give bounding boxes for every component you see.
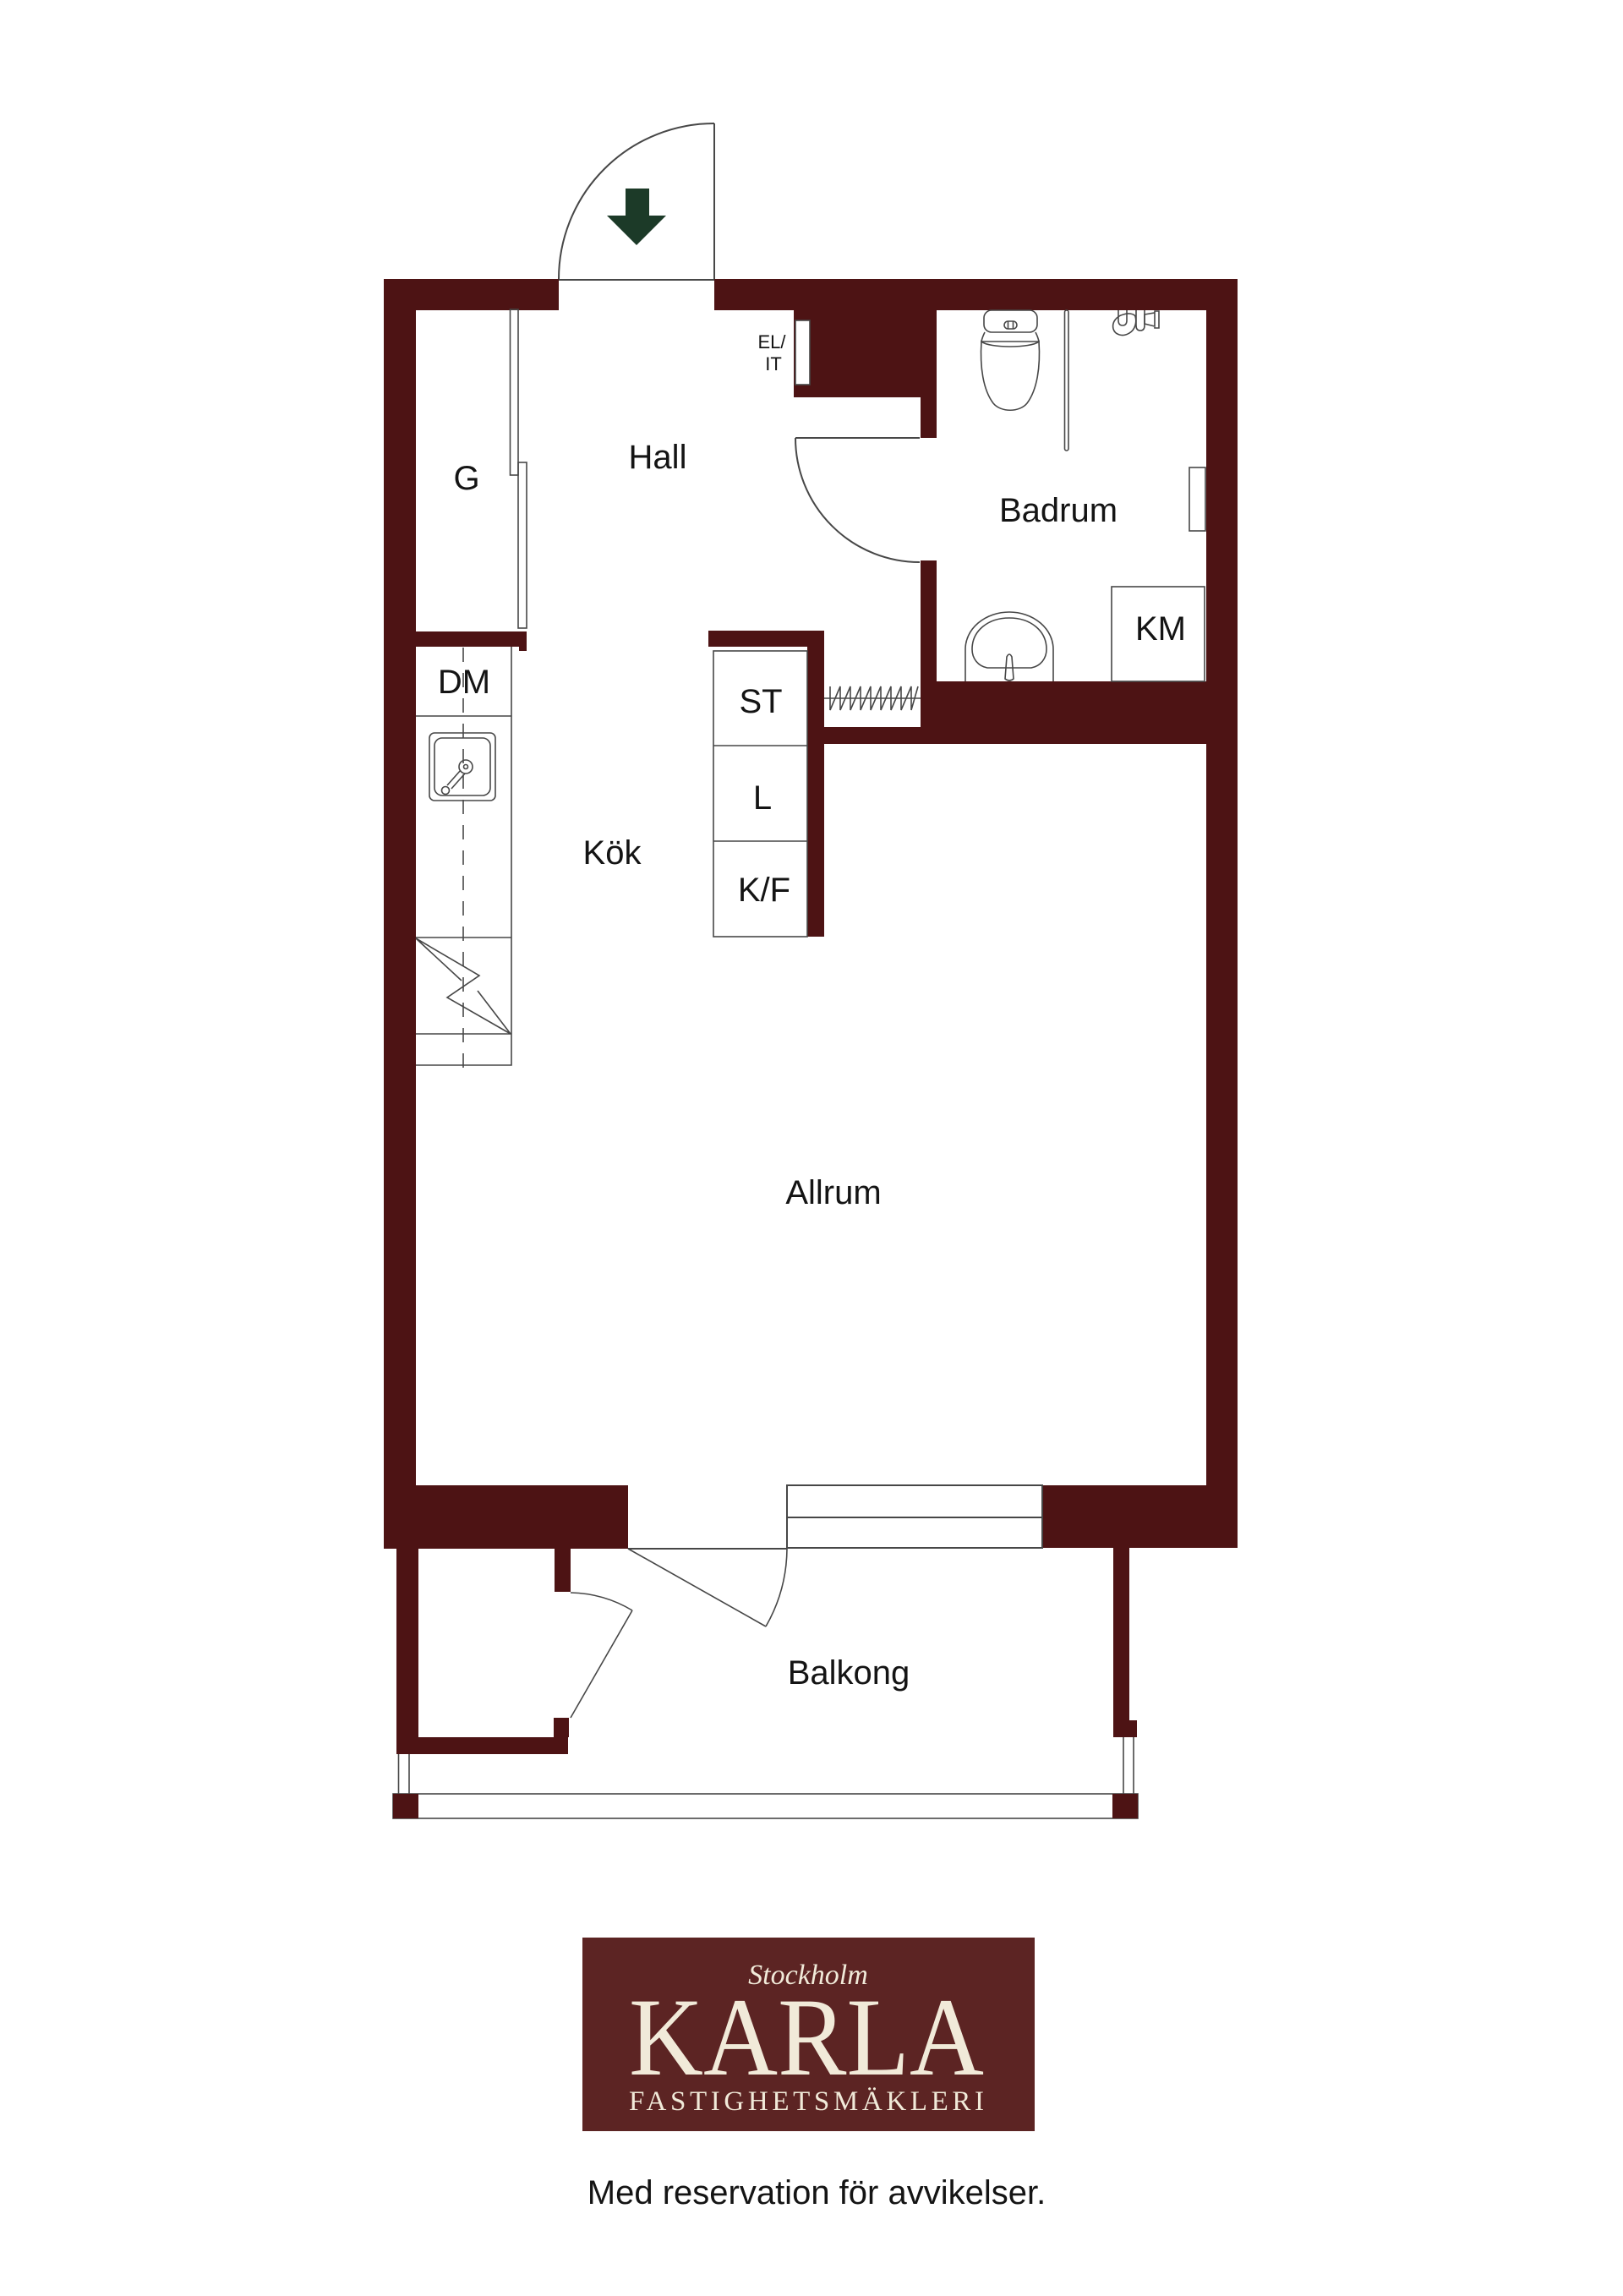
svg-text:KM: KM <box>1135 610 1186 648</box>
svg-text:Kök: Kök <box>583 834 642 872</box>
svg-text:KARLA: KARLA <box>629 1975 984 2099</box>
svg-text:L: L <box>753 779 772 817</box>
svg-text:K/F: K/F <box>738 872 790 909</box>
svg-text:Balkong: Balkong <box>788 1654 910 1692</box>
svg-text:EL/: EL/ <box>757 331 786 353</box>
svg-text:DM: DM <box>438 664 490 701</box>
svg-text:IT: IT <box>765 353 782 374</box>
svg-text:Allrum: Allrum <box>785 1174 881 1211</box>
svg-text:Hall: Hall <box>629 439 687 476</box>
svg-text:ST: ST <box>739 683 782 720</box>
svg-text:G: G <box>453 460 479 497</box>
svg-text:Badrum: Badrum <box>999 492 1118 529</box>
svg-text:FASTIGHETSMÄKLERI: FASTIGHETSMÄKLERI <box>629 2086 984 2117</box>
svg-text:Med reservation för avvikelser: Med reservation för avvikelser. <box>587 2174 1046 2211</box>
